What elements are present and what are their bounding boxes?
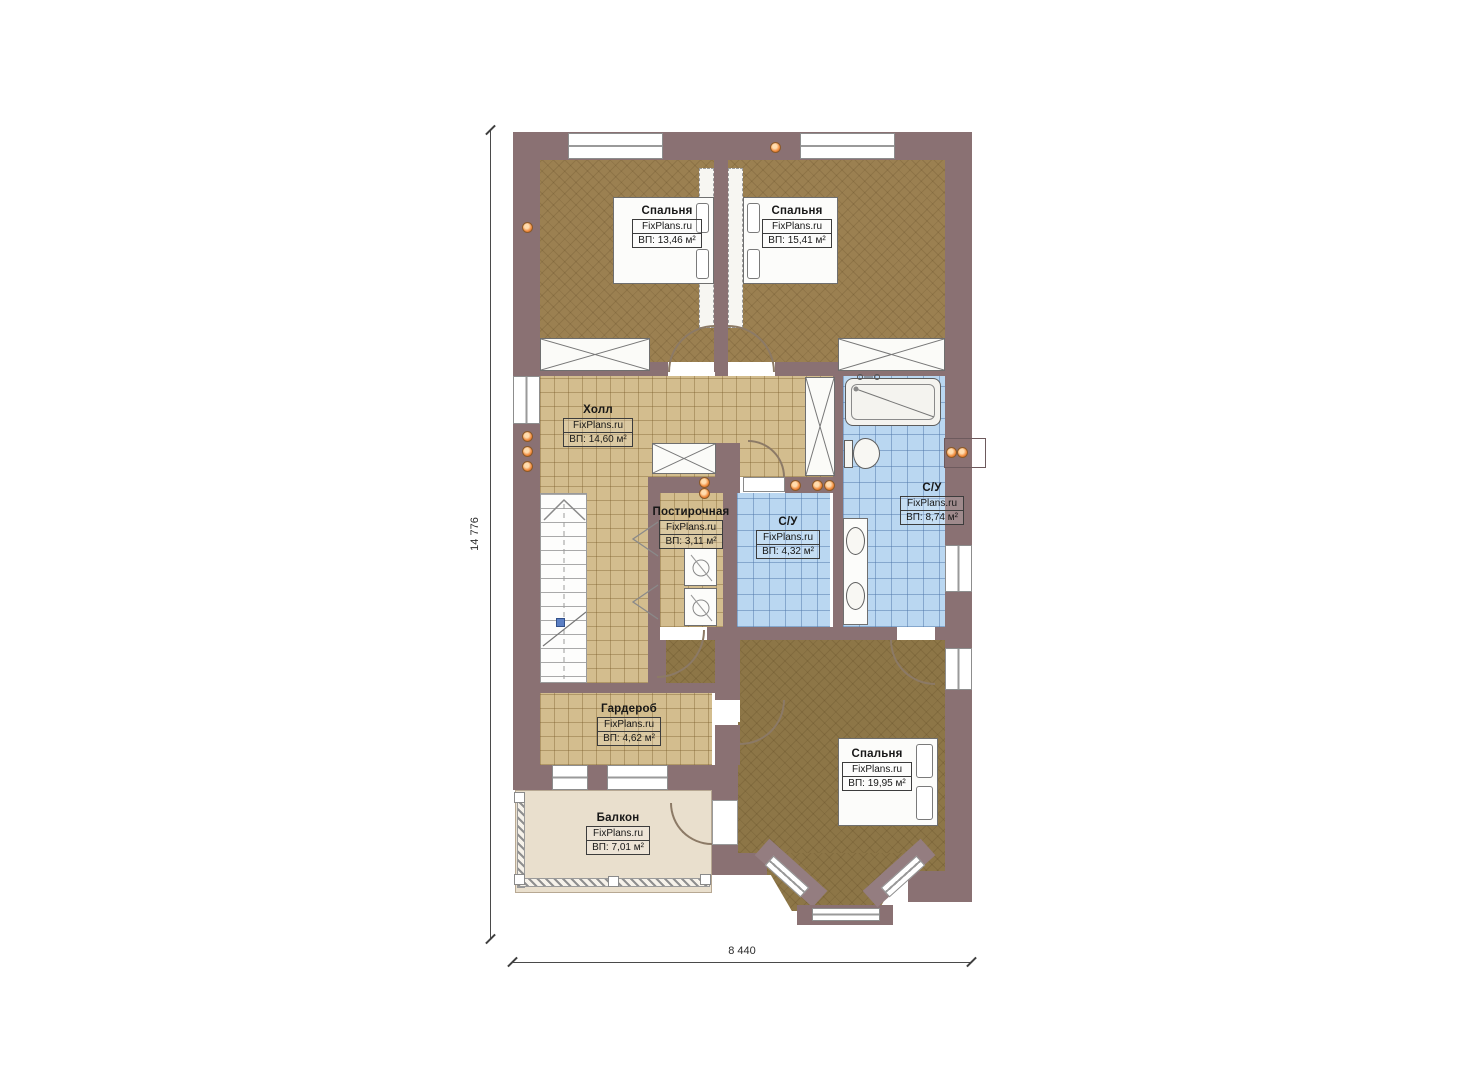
railing-post-1 [514,792,525,803]
light-dot-icon [522,222,533,233]
washing-machine-2 [684,588,717,626]
railing-post-3 [608,876,619,887]
wall-hall-top-2 [715,362,728,376]
staircase [540,493,587,683]
bed-1-pillow-bottom [696,249,709,279]
dimension-height-label: 14 776 [469,517,481,551]
folding-door-icon-1 [630,520,660,558]
railing-post-4 [700,874,711,885]
bed-1-pillow-top [696,203,709,233]
window-top-right [800,133,895,159]
light-dot-icon [812,480,823,491]
window-top-left [568,133,663,159]
wall-vestibule-right [715,640,740,700]
bed-3-pillow-bottom [916,786,933,820]
floor-plan-canvas: Спальня FixPlans.ru ВП: 13,46 м² Спальня… [0,0,1474,1080]
washing-machine-1 [684,548,717,586]
wall-right [945,132,972,902]
window-balcony-2 [607,765,668,790]
window-right-bath [945,545,972,592]
bathtub-inner [851,384,935,420]
closet-laundry [652,443,716,474]
wall-mid-2 [707,627,723,640]
light-dot-icon [522,461,533,472]
wall-wardrobe-top [540,683,715,693]
wall-wardrobe-right [715,725,740,765]
light-dot-icon [770,142,781,153]
light-dot-icon [824,480,835,491]
bed-2-pillow-top [747,203,760,233]
toilet-tank [844,440,853,468]
wall-bay-right-flat [908,871,972,902]
bed-2-pillow-bottom [747,249,760,279]
sink-top [846,527,865,555]
stair-section-marker [556,618,565,627]
faucet-icon [855,368,885,377]
sink-bottom [846,582,865,610]
wall-laundry-right [723,493,737,627]
wall-laundry-top [648,477,740,493]
light-dot-icon [790,480,801,491]
light-dot-icon [522,431,533,442]
door-opening-ensuite [897,627,935,640]
window-right-bedroom3 [945,648,972,690]
wardrobe-room-floor [540,693,712,765]
window-bay-bottom [812,908,880,921]
door-opening-bedroom-3 [715,700,740,722]
light-dot-icon [946,447,957,458]
wall-mid-4 [935,627,945,640]
window-left-hall [513,376,540,424]
light-dot-icon [699,488,710,499]
wall-mid-3 [723,627,897,640]
wall-closet-stub [715,443,740,477]
staircase-markings [541,494,588,684]
dimension-line-horizontal [512,962,972,963]
bathroom-small-floor [737,493,830,627]
light-dot-icon [699,477,710,488]
light-dot-icon [957,447,968,458]
wardrobe-strip-right [728,168,743,328]
dimension-width-label: 8 440 [712,945,772,957]
closet-bedroom-1 [540,338,650,371]
railing-post-2 [514,874,525,885]
closet-bedroom-2 [838,338,945,371]
bathtub [845,378,941,426]
folding-door-icon-2 [630,583,660,621]
wall-bedroom-divider [714,160,728,372]
dimension-line-vertical [490,130,491,940]
door-leaf-bath-small [743,477,785,492]
light-dot-icon [522,446,533,457]
window-balcony-1 [552,765,588,790]
door-opening-balcony [712,800,738,845]
bed-3-pillow-top [916,744,933,778]
closet-hall [805,377,835,476]
